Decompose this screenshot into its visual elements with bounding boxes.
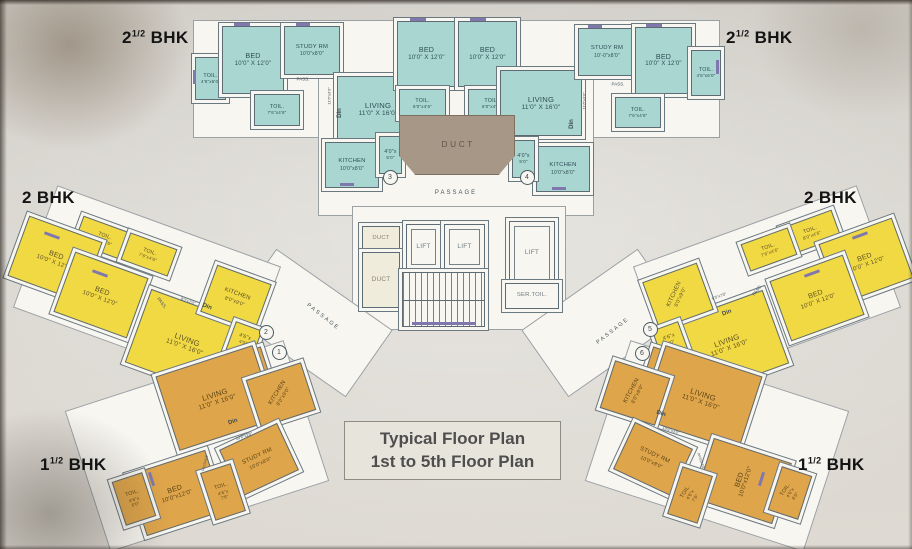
room-duct: DUCT <box>362 252 400 308</box>
room-label: TOIL.7'6"x4'6" <box>758 241 780 259</box>
unit-type-number: 1 <box>798 455 808 474</box>
dimension-label: 11'6"x3'0" <box>582 92 587 109</box>
room-label: STUDY RM10'-0"x8'0" <box>591 45 623 58</box>
room-label-line: 11'0" X 16'0" <box>359 110 398 118</box>
room-label: 4'0"x5'0" <box>517 153 529 165</box>
floor-plan-page: TOIL.4'6"x6'0"BED10'0" X 12'0"STUDY RM10… <box>0 0 912 549</box>
room-kitchen: KITCHEN10'0"x8'0" <box>325 142 379 188</box>
room-label-line: 10'-0"x8'0" <box>591 53 623 59</box>
room-label-line: 7'6"x4'6" <box>268 110 287 115</box>
room-label-line: 10'0"x8'0" <box>338 166 365 172</box>
room-label-line: LIFT <box>416 243 430 251</box>
unit-type-label-mid-left: 2BHK <box>22 188 75 208</box>
room-label-line: D U C T <box>441 140 472 150</box>
room-label: TOIL.7'6"x4'6" <box>268 104 287 116</box>
passage-label: PASSAGE <box>435 190 477 196</box>
room-duct: DUCT <box>362 226 400 252</box>
passage-label: PASS. <box>612 82 625 87</box>
room-lift: LIFT <box>509 221 555 285</box>
unit-type-label-top-left: 21/2BHK <box>122 28 189 48</box>
room-label-line: 7'6"x4'6" <box>629 113 648 118</box>
room-label-line: BED <box>469 46 506 54</box>
room-label: KITCHEN8'0"x9'0" <box>221 287 251 309</box>
room-label: LIVING11'0" X 16'0" <box>707 329 749 358</box>
room-lift: LIFT <box>406 224 441 270</box>
room-label: TOIL.8'0"x4'6" <box>413 98 432 110</box>
room-label: BED10'0" X 12'0" <box>81 281 121 308</box>
dining-label: Din <box>337 108 343 118</box>
unit-number-badge: 4 <box>520 170 535 185</box>
room-lift: LIFT <box>444 224 485 270</box>
room-study-room: STUDY RM10'-0"x8'0" <box>578 28 636 76</box>
room-label-line: 10'0" X 12'0" <box>235 61 272 68</box>
window-sill <box>234 23 250 26</box>
unit-type-fraction: 1/2 <box>808 455 822 465</box>
room-label: TOIL.4'6"x6'0" <box>201 73 220 85</box>
room-label-line: KITCHEN <box>338 158 365 165</box>
unit-type-number: 2 <box>22 188 32 207</box>
window-sill <box>470 18 486 21</box>
unit-type-suffix: BHK <box>37 188 75 207</box>
room-study-room: STUDY RM10'0"x8'0" <box>284 26 340 75</box>
room-label-line: BED <box>235 52 272 60</box>
window-sill <box>410 18 426 21</box>
room-label: LIFT <box>457 243 471 251</box>
room-label-line: LIVING <box>522 95 561 104</box>
room-label: SER.TOIL. <box>517 292 547 299</box>
room-label-line: 4'6"x6'0" <box>697 73 716 78</box>
room-label: DUCT <box>372 235 389 242</box>
room-label-line: 10'0" X 12'0" <box>645 61 682 68</box>
room-label-line: 10'0" X 12'0" <box>408 55 445 62</box>
room-label: 4'0"x5'0" <box>384 149 396 161</box>
room-label: TOIL.8'0"x4'6" <box>482 98 501 110</box>
window-sill <box>193 70 196 84</box>
room-label: LIFT <box>525 249 539 257</box>
room-staircase <box>402 272 485 327</box>
room-label: LIVING11'0" X 16'0" <box>681 384 723 412</box>
unit-type-suffix: BHK <box>819 188 857 207</box>
room-label-line: 4'6"x6'0" <box>201 79 220 84</box>
room-label: LIVING11'0" X 16'0" <box>165 328 207 357</box>
room-label-line: DUCT <box>372 276 391 284</box>
room-label: BED10'0"x12'0" <box>158 481 193 506</box>
room-label-line: STUDY RM <box>296 44 328 51</box>
room-label: KITCHEN8'0"x9'0" <box>666 281 689 311</box>
room-label: STUDY RM10'0"x8'0" <box>636 446 671 471</box>
unit-type-number: 2 <box>122 28 132 47</box>
room-label: BED10'0" X 12'0" <box>408 46 445 62</box>
room-kitchen: KITCHEN10'0"x8'0" <box>536 146 590 192</box>
room-bedroom: BED10'0" X 12'0" <box>222 26 284 94</box>
passage-label: PASS. <box>297 77 310 82</box>
unit-type-suffix: BHK <box>827 455 865 474</box>
room-label: KITCHEN10'0"x8'0" <box>549 162 576 175</box>
room-toilet: TOIL.8'0"x4'6" <box>399 89 446 118</box>
room-label-line: 10'0"x8'0" <box>296 51 328 57</box>
room-label-line: BED <box>645 53 682 61</box>
room-label: TOIL.7'6"x4'6" <box>138 246 160 264</box>
plan-title-line2: 1st to 5th Floor Plan <box>371 451 534 474</box>
window-sill <box>552 187 566 190</box>
room-label: DUCT <box>372 276 391 284</box>
room-label-line: STUDY RM <box>591 45 623 52</box>
room-label: TOIL.4'6"x7'6" <box>214 482 233 503</box>
window-sill <box>716 60 719 74</box>
unit-number-badge: 3 <box>383 170 398 185</box>
room-duct: D U C T <box>399 115 515 175</box>
room-label-line: 10'0"x8'0" <box>549 170 576 176</box>
room-bedroom: BED10'0" X 12'0" <box>397 21 456 87</box>
room-label: LIVING11'0" X 16'0" <box>359 101 398 118</box>
room-label: TOIL.7'6"x4'6" <box>629 107 648 119</box>
room-label-line: 8'0"x4'6" <box>413 104 432 109</box>
room-label: STUDY RM10'0"x8'0" <box>296 44 328 57</box>
room-bedroom: BED10'0" X 12'0" <box>635 27 692 94</box>
room-label: TOIL.4'6"x6'0" <box>697 67 716 79</box>
room-label: LIVING11'0" X 16'0" <box>522 95 561 112</box>
room-label: BED10'0" X 12'0" <box>235 52 272 68</box>
unit-type-suffix: BHK <box>755 28 793 47</box>
window-sill <box>412 322 476 325</box>
room-label: TOIL.4'6"x7'6" <box>679 484 701 505</box>
room-label: TOIL.4'6"x6'0" <box>125 489 144 510</box>
unit-type-suffix: BHK <box>69 455 107 474</box>
room-label: LIFT <box>416 243 430 251</box>
room-label-line: 5'0" <box>517 159 529 164</box>
room-label: STUDY RM10'0"x8'0" <box>242 447 277 472</box>
window-sill <box>296 23 310 26</box>
room-label: KITCHEN10'0"x8'0" <box>338 158 365 171</box>
window-sill <box>646 24 662 27</box>
room-label-line: 10'0" X 12'0" <box>469 55 506 62</box>
room-label: TOIL.4'6"x6'0" <box>779 482 801 503</box>
window-sill <box>588 25 602 28</box>
room-label-line: BED <box>408 46 445 54</box>
room-label-line: LIVING <box>359 101 398 110</box>
dining-label: Din <box>569 119 575 129</box>
room-label: LIVING11'0" X 16'0" <box>195 384 237 412</box>
room-label: BED10'0" X 12'0" <box>469 46 506 62</box>
unit-number-badge: 6 <box>635 346 650 361</box>
room-label: BED10'0"x12'0" <box>731 463 756 498</box>
room-label: BED10'0" X 12'0" <box>797 284 837 311</box>
unit-type-suffix: BHK <box>151 28 189 47</box>
room-label-line: 11'0" X 16'0" <box>522 104 561 112</box>
plan-title-line1: Typical Floor Plan <box>380 428 525 451</box>
room-label: BED10'0" X 12'0" <box>645 53 682 69</box>
unit-type-fraction: 1/2 <box>736 28 750 38</box>
room-label-line: LIFT <box>525 249 539 257</box>
unit-type-number: 2 <box>726 28 736 47</box>
room-label: TOIL.8'0"x4'6" <box>800 224 822 242</box>
unit-type-label-mid-right: 2BHK <box>804 188 857 208</box>
unit-type-label-top-right: 21/2BHK <box>726 28 793 48</box>
room-label: KITCHEN8'0"x9'0" <box>268 380 294 410</box>
room-label: D U C T <box>441 140 472 150</box>
unit-number-badge: 2 <box>259 325 274 340</box>
room-label: BED10'0" X 12'0" <box>846 247 886 274</box>
unit-type-number: 2 <box>804 188 814 207</box>
room-label-line: 5'0" <box>384 155 396 160</box>
window-sill <box>340 183 354 186</box>
room-service-toilet: SER.TOIL. <box>505 283 559 309</box>
unit-type-fraction: 1/2 <box>50 455 64 465</box>
unit-type-label-bottom-left: 11/2BHK <box>40 455 107 475</box>
unit-number-badge: 5 <box>643 322 658 337</box>
room-balcony: 4'0"x5'0" <box>379 136 402 174</box>
unit-type-fraction: 1/2 <box>132 28 146 38</box>
room-label: KITCHEN8'0"x9'0" <box>623 378 647 408</box>
unit-type-label-bottom-right: 11/2BHK <box>798 455 865 475</box>
room-toilet: TOIL.7'6"x4'6" <box>615 97 661 128</box>
room-label-line: KITCHEN <box>549 162 576 169</box>
unit-number-badge: 1 <box>272 345 287 360</box>
dimension-label: 11'6"x3'0" <box>327 87 332 104</box>
room-label-line: SER.TOIL. <box>517 292 547 299</box>
room-label-line: 8'0"x4'6" <box>482 104 501 109</box>
room-label-line: DUCT <box>372 235 389 242</box>
room-label-line: LIFT <box>457 243 471 251</box>
unit-type-number: 1 <box>40 455 50 474</box>
plan-title-box: Typical Floor Plan 1st to 5th Floor Plan <box>344 421 561 480</box>
room-toilet: TOIL.7'6"x4'6" <box>254 94 300 126</box>
